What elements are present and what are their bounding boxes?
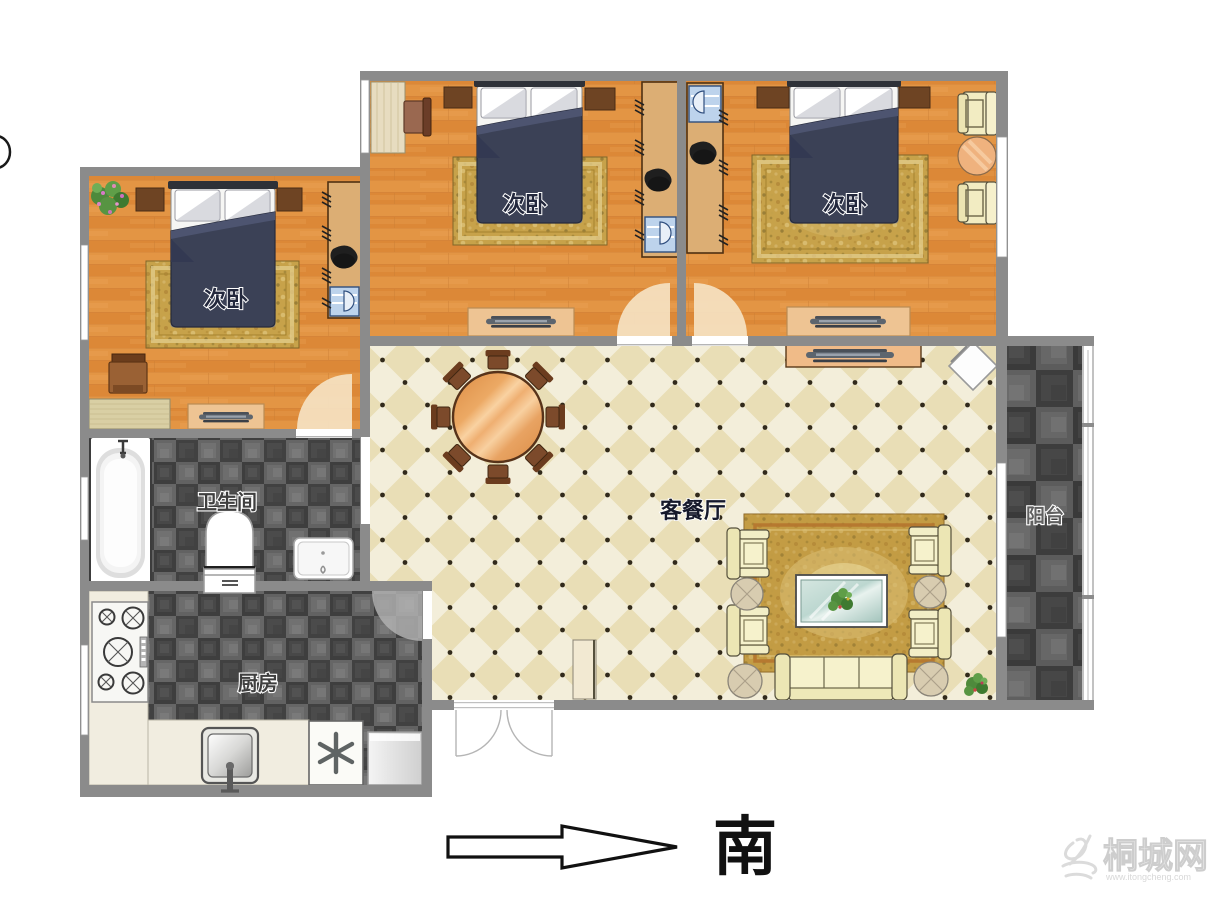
svg-text:厨房: 厨房 <box>238 671 278 695</box>
svg-text:南: 南 <box>713 811 777 883</box>
svg-text:卫生间: 卫生间 <box>197 491 257 514</box>
svg-text:次卧: 次卧 <box>503 192 547 217</box>
svg-text:www.itongcheng.com: www.itongcheng.com <box>1105 872 1191 882</box>
svg-text:客餐厅: 客餐厅 <box>660 498 726 523</box>
svg-text:次卧: 次卧 <box>204 287 248 312</box>
svg-text:次卧: 次卧 <box>823 192 867 217</box>
svg-text:阳台: 阳台 <box>1026 504 1064 527</box>
svg-text:桐城网: 桐城网 <box>1103 837 1208 876</box>
